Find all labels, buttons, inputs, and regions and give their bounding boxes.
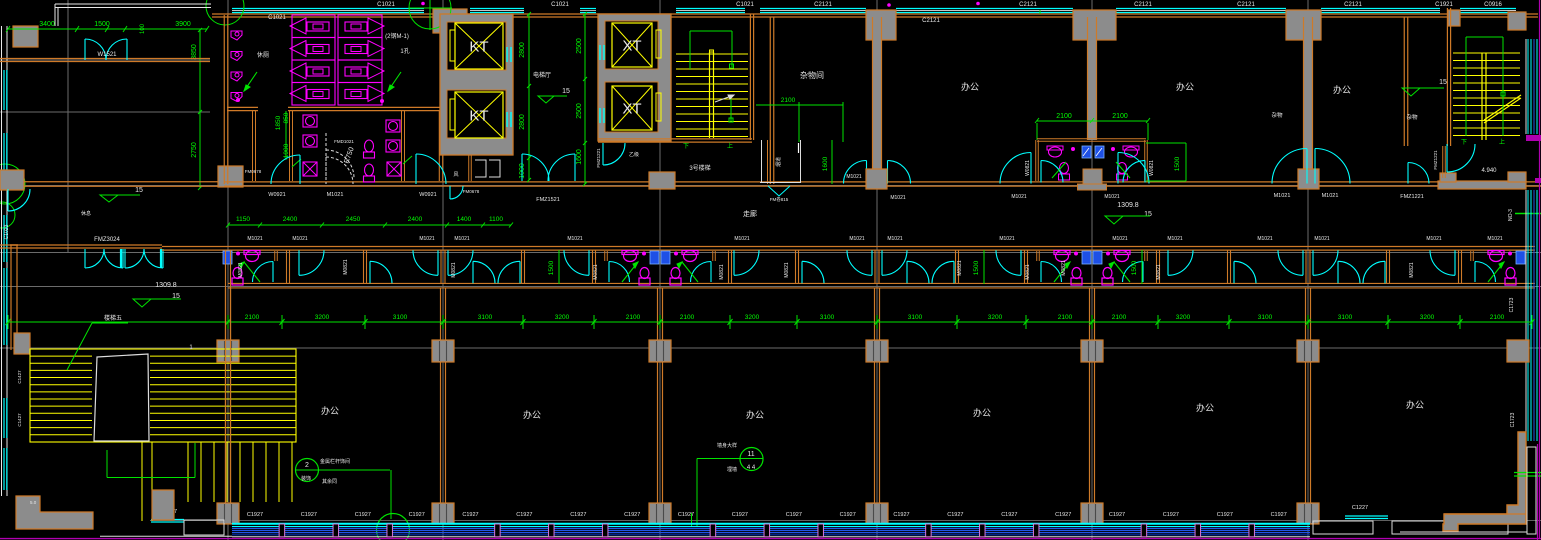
svg-text:C1927: C1927 [1055, 512, 1071, 518]
svg-text:C1927: C1927 [409, 512, 425, 518]
svg-text:1900: 1900 [283, 143, 290, 158]
svg-text:墙身大样: 墙身大样 [717, 442, 737, 449]
svg-text:1500: 1500 [548, 260, 555, 275]
svg-text:C1927: C1927 [355, 512, 371, 518]
svg-text:1850: 1850 [275, 115, 282, 130]
svg-text:办公: 办公 [1333, 84, 1351, 95]
svg-text:M1021: M1021 [1257, 236, 1273, 242]
svg-text:办公: 办公 [523, 409, 541, 420]
svg-text:M0821: M0821 [238, 262, 244, 278]
svg-text:1309.8: 1309.8 [155, 282, 177, 289]
svg-text:3100: 3100 [393, 314, 408, 321]
svg-text:W0821: W0821 [1149, 160, 1155, 176]
svg-text:FM0678: FM0678 [463, 189, 480, 194]
svg-text:M1021: M1021 [1112, 236, 1128, 242]
svg-text:FMZ1221: FMZ1221 [1400, 194, 1424, 200]
svg-text:1600: 1600 [822, 156, 829, 171]
svg-text:KT: KT [469, 39, 488, 56]
svg-text:M1021: M1021 [1314, 236, 1330, 242]
svg-text:C1927: C1927 [1271, 512, 1287, 518]
svg-text:3200: 3200 [555, 314, 570, 321]
svg-text:M1021: M1021 [247, 236, 263, 242]
svg-text:M1021: M1021 [1274, 193, 1291, 199]
svg-text:M0821: M0821 [957, 260, 963, 276]
svg-text:杂物: 杂物 [1406, 113, 1418, 121]
svg-text:3200: 3200 [745, 314, 760, 321]
svg-text:2100: 2100 [245, 314, 260, 321]
svg-text:2400: 2400 [408, 216, 423, 223]
svg-text:M0821: M0821 [1061, 260, 1067, 276]
svg-text:C1927: C1927 [247, 512, 263, 518]
svg-text:FM卷815: FM卷815 [770, 196, 789, 202]
svg-text:C2121: C2121 [1134, 2, 1152, 8]
svg-text:C1021: C1021 [551, 2, 569, 8]
svg-text:4 4: 4 4 [747, 465, 756, 471]
svg-text:4.940: 4.940 [1481, 168, 1497, 174]
svg-text:3100: 3100 [1338, 314, 1353, 321]
svg-text:1500: 1500 [1174, 156, 1181, 171]
svg-text:C1927: C1927 [624, 512, 640, 518]
svg-text:杂物间: 杂物间 [800, 70, 824, 80]
svg-text:C1921: C1921 [1435, 2, 1453, 8]
svg-text:3200: 3200 [1176, 314, 1191, 321]
svg-text:C1023: C1023 [4, 224, 10, 239]
svg-text:3100: 3100 [1258, 314, 1273, 321]
svg-text:5.0: 5.0 [30, 500, 37, 505]
svg-text:FMZ3024: FMZ3024 [94, 237, 120, 243]
svg-text:M1021: M1021 [567, 236, 583, 242]
svg-text:1309.8: 1309.8 [1117, 202, 1139, 209]
svg-text:C2121: C2121 [814, 2, 832, 8]
svg-text:办公: 办公 [321, 405, 339, 416]
svg-text:2: 2 [305, 462, 309, 469]
svg-text:W1521: W1521 [97, 52, 117, 58]
svg-text:FM0678: FM0678 [245, 169, 262, 174]
svg-text:1150: 1150 [236, 216, 250, 223]
svg-text:1500: 1500 [94, 21, 110, 28]
svg-text:M0821: M0821 [343, 259, 349, 275]
svg-text:C1927: C1927 [840, 512, 856, 518]
svg-text:办公: 办公 [1406, 399, 1424, 410]
svg-text:3号楼梯: 3号楼梯 [689, 164, 710, 172]
svg-text:休厕: 休厕 [257, 51, 269, 59]
svg-text:M1021: M1021 [1011, 194, 1027, 200]
svg-text:1400: 1400 [457, 216, 472, 223]
svg-text:XT: XT [622, 38, 641, 55]
svg-text:1500: 1500 [973, 260, 980, 275]
svg-text:上: 上 [727, 142, 733, 150]
svg-text:W0921: W0921 [268, 192, 285, 198]
svg-text:C2121: C2121 [922, 18, 940, 24]
svg-text:2100: 2100 [1112, 314, 1127, 321]
svg-text:C1927: C1927 [462, 512, 478, 518]
svg-text:C0916: C0916 [1484, 2, 1502, 8]
svg-text:3100: 3100 [478, 314, 493, 321]
svg-text:XT: XT [622, 101, 641, 118]
svg-text:1孔: 1孔 [400, 47, 409, 55]
svg-text:2100: 2100 [1490, 314, 1505, 321]
svg-text:2800: 2800 [519, 42, 526, 58]
svg-text:M1021: M1021 [846, 174, 862, 180]
svg-text:M1021: M1021 [1104, 194, 1120, 200]
svg-text:3850: 3850 [191, 44, 198, 60]
svg-text:C1227: C1227 [1352, 505, 1368, 511]
svg-text:C1927: C1927 [301, 512, 317, 518]
svg-text:3100: 3100 [820, 314, 835, 321]
svg-text:M1021: M1021 [1167, 236, 1183, 242]
svg-text:杂物: 杂物 [1271, 111, 1283, 119]
svg-text:风: 风 [453, 172, 458, 178]
svg-text:2450: 2450 [346, 216, 361, 223]
svg-text:FMZ1221: FMZ1221 [596, 148, 601, 168]
svg-text:休息: 休息 [81, 210, 91, 217]
svg-text:C1021: C1021 [377, 2, 395, 8]
svg-text:C1927: C1927 [1001, 512, 1017, 518]
svg-text:C2121: C2121 [1019, 2, 1037, 8]
svg-text:C2121: C2121 [1344, 2, 1362, 8]
svg-text:M1021: M1021 [292, 236, 308, 242]
svg-text:100: 100 [140, 23, 146, 34]
svg-text:C1927: C1927 [786, 512, 802, 518]
svg-text:其余同: 其余同 [322, 478, 337, 485]
svg-text:W0821: W0821 [1025, 160, 1031, 176]
svg-text:2800: 2800 [519, 114, 526, 130]
svg-text:办公: 办公 [961, 81, 979, 92]
svg-text:M0821: M0821 [784, 262, 790, 278]
svg-text:2750: 2750 [191, 142, 198, 158]
svg-text:M0821: M0821 [1409, 262, 1415, 278]
svg-text:下: 下 [683, 143, 689, 150]
svg-text:M0821: M0821 [451, 262, 457, 278]
svg-text:KT: KT [469, 108, 488, 125]
svg-text:2100: 2100 [781, 97, 796, 104]
svg-text:C1427: C1427 [17, 413, 22, 427]
svg-text:C1927: C1927 [1217, 512, 1233, 518]
svg-text:烟道: 烟道 [775, 157, 782, 167]
svg-text:2500: 2500 [576, 103, 583, 119]
svg-text:NO-3: NO-3 [1508, 209, 1514, 221]
svg-text:15: 15 [562, 88, 570, 95]
svg-text:1100: 1100 [489, 216, 503, 223]
svg-text:3900: 3900 [175, 21, 191, 28]
svg-text:M1021: M1021 [419, 236, 435, 242]
svg-text:W0921: W0921 [419, 192, 436, 198]
svg-text:M1021: M1021 [999, 236, 1015, 242]
svg-text:2100: 2100 [1056, 113, 1072, 120]
svg-text:M0821: M0821 [719, 264, 725, 280]
svg-text:C1927: C1927 [678, 512, 694, 518]
svg-text:上: 上 [1499, 138, 1505, 146]
svg-text:C1927: C1927 [947, 512, 963, 518]
svg-text:C1723: C1723 [1509, 297, 1515, 312]
svg-text:FMZ1221: FMZ1221 [1433, 150, 1438, 170]
svg-text:15: 15 [1439, 79, 1447, 86]
svg-text:1500: 1500 [1131, 260, 1138, 275]
svg-text:M1021: M1021 [454, 236, 470, 242]
svg-text:C1927: C1927 [732, 512, 748, 518]
svg-text:1600: 1600 [576, 149, 583, 165]
svg-text:乙级: 乙级 [629, 151, 639, 158]
svg-text:11: 11 [747, 451, 754, 458]
svg-text:15: 15 [1144, 211, 1152, 218]
svg-text:FMZ1521: FMZ1521 [536, 197, 560, 203]
svg-text:M1021: M1021 [327, 192, 344, 198]
svg-text:M0821: M0821 [1025, 264, 1031, 280]
svg-text:3400: 3400 [39, 21, 55, 28]
svg-text:M1021: M1021 [734, 236, 750, 242]
svg-text:2100: 2100 [626, 314, 641, 321]
svg-text:C1723: C1723 [1510, 412, 1516, 427]
svg-text:C1927: C1927 [1163, 512, 1179, 518]
svg-text:M1021: M1021 [1426, 236, 1442, 242]
svg-text:FMD1021: FMD1021 [334, 139, 354, 144]
svg-text:2100: 2100 [1112, 113, 1128, 120]
svg-text:M0821: M0821 [593, 264, 599, 280]
svg-text:2400: 2400 [283, 216, 298, 223]
svg-text:2100: 2100 [680, 314, 695, 321]
svg-text:电梯厅: 电梯厅 [533, 71, 551, 79]
svg-text:金属栏杆饰间: 金属栏杆饰间 [320, 458, 350, 465]
svg-text:办公: 办公 [973, 407, 991, 418]
svg-text:C1427: C1427 [17, 370, 22, 384]
svg-text:3100: 3100 [908, 314, 923, 321]
svg-text:C1021: C1021 [268, 15, 286, 21]
svg-text:M1021: M1021 [887, 236, 903, 242]
svg-text:M1021: M1021 [1322, 193, 1339, 199]
svg-text:3200: 3200 [988, 314, 1003, 321]
svg-text:下: 下 [1461, 139, 1467, 146]
svg-text:C1927: C1927 [893, 512, 909, 518]
svg-text:M1021: M1021 [849, 236, 865, 242]
svg-text:装饰: 装饰 [301, 475, 311, 482]
svg-text:15: 15 [135, 187, 143, 194]
svg-text:C1927: C1927 [516, 512, 532, 518]
svg-text:C1021: C1021 [736, 2, 754, 8]
svg-text:M1021: M1021 [890, 195, 906, 201]
svg-text:(2钢M-1): (2钢M-1) [385, 32, 409, 40]
svg-text:办公: 办公 [1196, 402, 1214, 413]
svg-text:楼梯五: 楼梯五 [104, 314, 122, 322]
svg-text:3200: 3200 [1420, 314, 1435, 321]
svg-text:办公: 办公 [1176, 81, 1194, 92]
svg-text:走廊: 走廊 [743, 209, 757, 218]
svg-text:M1021: M1021 [1487, 236, 1503, 242]
svg-text:C2121: C2121 [1237, 2, 1255, 8]
svg-text:C1927: C1927 [570, 512, 586, 518]
svg-text:M0821: M0821 [1156, 264, 1162, 280]
svg-text:3200: 3200 [315, 314, 330, 321]
svg-text:2500: 2500 [576, 38, 583, 54]
svg-text:埋墙: 埋墙 [727, 466, 737, 473]
svg-text:2100: 2100 [1058, 314, 1073, 321]
svg-text:850: 850 [283, 112, 290, 123]
svg-text:C1927: C1927 [1109, 512, 1125, 518]
svg-text:办公: 办公 [746, 409, 764, 420]
